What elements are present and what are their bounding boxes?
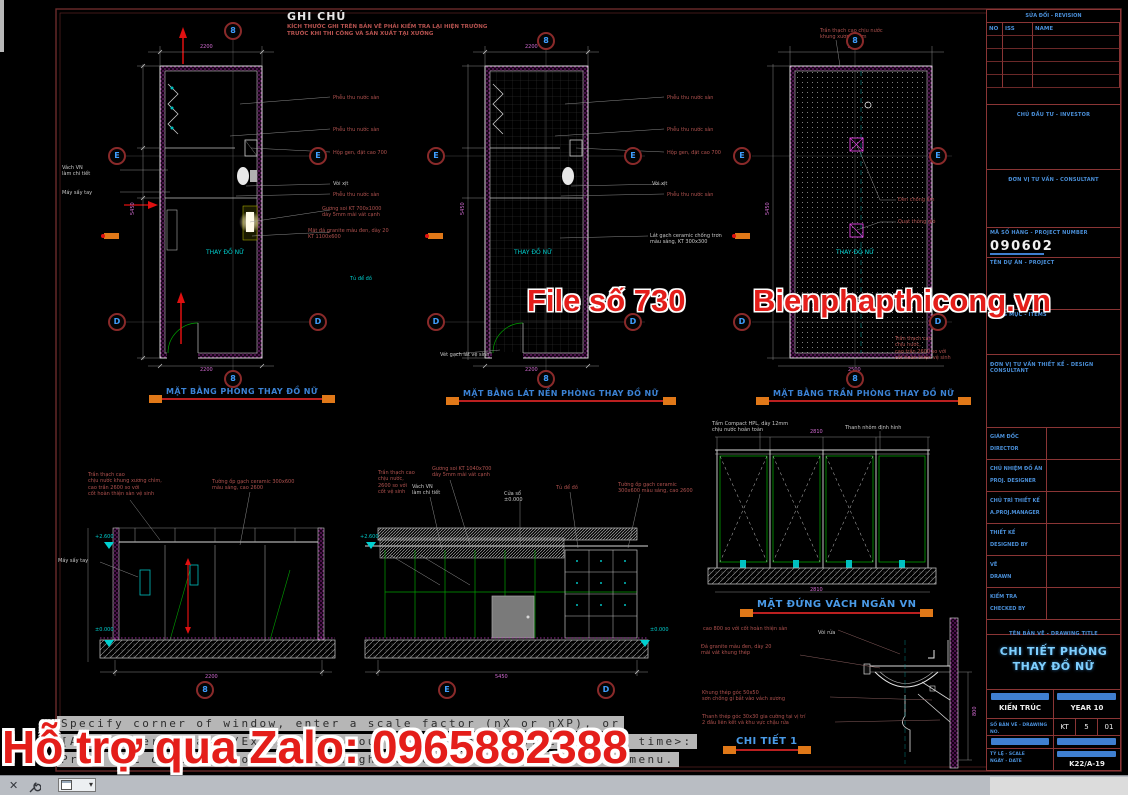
annotation-label: Đèn chống ẩm bbox=[898, 197, 935, 203]
dimension-text: 2200 bbox=[205, 674, 218, 680]
grid-bubble-8: 8 bbox=[846, 32, 864, 50]
locker-grid bbox=[565, 550, 637, 638]
sheet-icon bbox=[61, 780, 72, 790]
annotation-label: Quạt thông gió bbox=[898, 219, 935, 225]
annotation-label: Tường ốp gạch ceramic 300x600 màu sáng, … bbox=[618, 482, 693, 495]
grid-bubble-D: D bbox=[309, 313, 327, 331]
annotation-label: Khung thép góc 50x50 sơn chống gỉ bắt và… bbox=[702, 690, 785, 703]
grid-bubble-D: D bbox=[597, 681, 615, 699]
discipline-cell: KIẾN TRÚC bbox=[987, 704, 1053, 712]
dimension-text: 5450 bbox=[460, 202, 466, 215]
p-trap bbox=[902, 716, 910, 752]
annotation-label: Phễu thu nước sàn bbox=[333, 127, 379, 133]
status-bar-right bbox=[990, 777, 1128, 795]
plan2-title: MẶT BẰNG LÁT NỀN PHÒNG THAY ĐỒ NỮ bbox=[447, 389, 675, 402]
revision-col-name: NAME bbox=[1033, 23, 1120, 36]
grid-bubble-E: E bbox=[929, 147, 947, 165]
annotation-label: Đá granite màu đen, dày 20 mài vát khung… bbox=[701, 644, 771, 657]
annotation-label: THAY ĐỒ NỮ bbox=[836, 249, 874, 257]
annotation-label: Hộp gen, đặt cao 700 bbox=[333, 150, 387, 156]
grid-bubble-8: 8 bbox=[537, 370, 555, 388]
wrench-icon[interactable] bbox=[28, 779, 41, 795]
consultant-box: ĐƠN VỊ TƯ VẤN - CONSULTANT bbox=[987, 170, 1120, 228]
grid-bubble-E: E bbox=[427, 147, 445, 165]
title-block: SỬA ĐỔI - REVISION NO ISS NAME CHỦ ĐẦU T… bbox=[986, 9, 1121, 771]
scale-label: TỶ LỆ - SCALE bbox=[990, 751, 1052, 758]
annotation-label: THAY ĐỒ NỮ bbox=[206, 249, 244, 257]
detail-view-1 bbox=[800, 618, 972, 768]
note-title: GHI CHÚ bbox=[287, 10, 499, 23]
dimension-text: 2200 bbox=[200, 367, 213, 373]
layout-combo[interactable]: ▾ bbox=[58, 778, 96, 792]
general-note: GHI CHÚ KÍCH THƯỚC GHI TRÊN BẢN VẼ PHẢI … bbox=[287, 10, 499, 38]
annotation-label: Vòi xịt bbox=[652, 181, 667, 187]
annotation-label: cao 800 so với cốt hoàn thiện sàn bbox=[703, 626, 787, 632]
dimension-text: 2200 bbox=[525, 367, 538, 373]
grid-bubble-8: 8 bbox=[224, 22, 242, 40]
dimension-text: 800 bbox=[972, 706, 978, 716]
grid-bubble-E: E bbox=[624, 147, 642, 165]
annotation-label: Vòi rửa bbox=[818, 630, 835, 636]
annotation-label: Trần thạch cao chịu nước, 2600 so với cố… bbox=[378, 470, 415, 495]
dimension-text: 5450 bbox=[130, 202, 136, 215]
chevron-down-icon: ▾ bbox=[89, 781, 93, 789]
revision-table: SỬA ĐỔI - REVISION NO ISS NAME bbox=[987, 10, 1120, 105]
titleblock-staff-row: THIẾT KẾDESIGNED BY bbox=[987, 524, 1120, 556]
toilet-symbol bbox=[237, 167, 249, 185]
watermark-website: Bienphapthicong.vn bbox=[753, 283, 1051, 319]
annotation-label: Máy sấy tay bbox=[62, 190, 92, 196]
grid-bubble-D: D bbox=[108, 313, 126, 331]
grid-bubble-8: 8 bbox=[846, 370, 864, 388]
revision-col-no: NO bbox=[987, 23, 1003, 36]
grid-bubble-8: 8 bbox=[196, 681, 214, 699]
dimension-text: 2200 bbox=[525, 44, 538, 50]
annotation-label: Hộp gen, đặt cao 700 bbox=[667, 150, 721, 156]
annotation-label: ±0.000 bbox=[650, 627, 669, 633]
drawing-title-box: CHI TIẾT PHÒNG THAY ĐỒ NỮ bbox=[987, 635, 1120, 690]
annotation-label: +2.600 bbox=[95, 534, 114, 540]
grid-bubble-E: E bbox=[438, 681, 456, 699]
staff-table: GIÁM ĐỐCDIRECTORCHỦ NHIỆM ĐỒ ÁNPROJ. DES… bbox=[987, 428, 1120, 620]
annotation-label: Phễu thu nước sàn bbox=[667, 127, 713, 133]
annotation-label: Vét gạch lát vệ sinh bbox=[440, 352, 489, 358]
annotation-label: Tủ để đồ bbox=[350, 276, 372, 282]
grid-bubble-D: D bbox=[427, 313, 445, 331]
annotation-label: Phễu thu nước sàn bbox=[667, 95, 713, 101]
lavabo-bowl bbox=[875, 672, 938, 687]
titleblock-staff-row: CHỦ TRÌ THIẾT KẾA.PROJ.MANAGER bbox=[987, 492, 1120, 524]
design-unit-box: ĐƠN VỊ TƯ VẤN THIẾT KẾ - DESIGN CONSULTA… bbox=[987, 355, 1120, 428]
partition-elevation bbox=[708, 431, 936, 592]
autocad-screen: GHI CHÚ KÍCH THƯỚC GHI TRÊN BẢN VẼ PHẢI … bbox=[0, 0, 1128, 795]
titleblock-staff-row: VẼDRAWN bbox=[987, 556, 1120, 588]
annotation-label: Tủ để đồ bbox=[556, 485, 578, 491]
annotation-label: Trần thạch cao chịu nước, cao trần 2600 … bbox=[895, 336, 951, 361]
annotation-label: Phễu thu nước sàn bbox=[333, 95, 379, 101]
annotation-label: Trần thạch cao chịu nước khung xương chì… bbox=[88, 472, 162, 497]
sheet-total-cell: 01 bbox=[1097, 719, 1120, 735]
sheet-code-cell: K22/A-19 bbox=[1054, 760, 1120, 768]
annotation-label: Phễu thu nước sàn bbox=[333, 192, 379, 198]
watermark-file-number: File số 730 bbox=[527, 283, 686, 319]
annotation-label: Vách VN làm chi tiết bbox=[412, 484, 440, 497]
dimension-text: 5450 bbox=[495, 674, 508, 680]
date-label: NGÀY - DATE bbox=[990, 758, 1052, 765]
annotation-label: Tấm Compact HPL, dày 12mm chịu nước hoàn… bbox=[712, 421, 788, 434]
annotation-label: THAY ĐỒ NỮ bbox=[514, 249, 552, 257]
sheet-no-cell: 5 bbox=[1075, 719, 1097, 735]
dwg-series-cell: KT bbox=[1053, 719, 1075, 735]
plan-view-1 bbox=[101, 27, 330, 372]
faucet bbox=[928, 650, 934, 658]
annotation-label: ±0.000 bbox=[95, 627, 114, 633]
titleblock-staff-row: CHỦ NHIỆM ĐỒ ÁNPROJ. DESIGNER bbox=[987, 460, 1120, 492]
grid-bubble-E: E bbox=[108, 147, 126, 165]
grid-bubble-D: D bbox=[733, 313, 751, 331]
titleblock-staff-row: GIÁM ĐỐCDIRECTOR bbox=[987, 428, 1120, 460]
dimension-text: 2810 bbox=[810, 587, 823, 593]
annotation-label: Mặt đá granite màu đen, dày 20 KT 1100x6… bbox=[308, 228, 389, 241]
annotation-label: +2.600 bbox=[360, 534, 379, 540]
note-body: KÍCH THƯỚC GHI TRÊN BẢN VẼ PHẢI KIỂM TRA… bbox=[287, 24, 499, 38]
detail-title: CHI TIẾT 1 bbox=[724, 736, 810, 751]
watermark-zalo: Hỗ trợ qua Zalo: 0965882388 bbox=[2, 720, 628, 774]
status-bar: ✕ ▾ bbox=[0, 775, 1128, 795]
project-number-box: MÃ SỐ HÀNG - PROJECT NUMBER 090602 bbox=[987, 228, 1120, 258]
dimension-text: 2200 bbox=[200, 44, 213, 50]
investor-box: CHỦ ĐẦU TƯ - INVESTOR bbox=[987, 105, 1120, 170]
annotation-label: Lát gạch ceramic chống trơn màu sáng, KT… bbox=[650, 233, 722, 246]
section-view-b bbox=[365, 480, 650, 676]
sheet-info-grid: KIẾN TRÚC YEAR 10 SỐ BẢN VẼ - DRAWING NO… bbox=[987, 690, 1120, 771]
elevation-title: MẶT ĐỨNG VÁCH NGĂN VN bbox=[741, 599, 932, 614]
annotation-label: Gương soi KT 700x1000 dày 5mm mài vát cạ… bbox=[322, 206, 381, 219]
grid-bubble-E: E bbox=[309, 147, 327, 165]
project-number-value: 090602 bbox=[987, 238, 1120, 254]
palette-edge bbox=[0, 0, 4, 52]
revision-col-iss: ISS bbox=[1003, 23, 1033, 36]
annotation-label: Cửa sổ ±0.000 bbox=[504, 491, 523, 504]
titleblock-staff-row: KIỂM TRACHECKED BY bbox=[987, 588, 1120, 620]
dimension-text: 2810 bbox=[810, 429, 823, 435]
grid-bubble-8: 8 bbox=[224, 370, 242, 388]
grid-bubble-E: E bbox=[733, 147, 751, 165]
year-cell: YEAR 10 bbox=[1054, 704, 1120, 712]
annotation-label: Vòi xịt bbox=[333, 181, 348, 187]
annotation-label: Gương soi KT 1040x700 dày 5mm mài vát cạ… bbox=[432, 466, 491, 479]
annotation-label: Máy sấy tay bbox=[58, 558, 88, 564]
close-icon[interactable]: ✕ bbox=[9, 779, 18, 792]
drawing-title-label: TÊN BẢN VẼ - DRAWING TITLE bbox=[987, 620, 1120, 635]
annotation-label: Tường ốp gạch ceramic 300x600 màu sáng, … bbox=[212, 479, 294, 492]
dimension-text: 5450 bbox=[765, 202, 771, 215]
plan3-title: MẶT BẰNG TRẦN PHÒNG THAY ĐỒ NỮ bbox=[757, 389, 970, 402]
grid-bubble-8: 8 bbox=[537, 32, 555, 50]
plan1-title: MẶT BẰNG PHÒNG THAY ĐỒ NỮ bbox=[150, 387, 334, 400]
section-view-a bbox=[88, 492, 335, 676]
annotation-label: Thanh thép góc 30x30 gia cường tại vị tr… bbox=[702, 714, 806, 727]
annotation-label: Vách VN làm chi tiết bbox=[62, 165, 90, 178]
annotation-label: Thanh nhôm định hình bbox=[845, 425, 901, 431]
annotation-label: Phễu thu nước sàn bbox=[667, 192, 713, 198]
